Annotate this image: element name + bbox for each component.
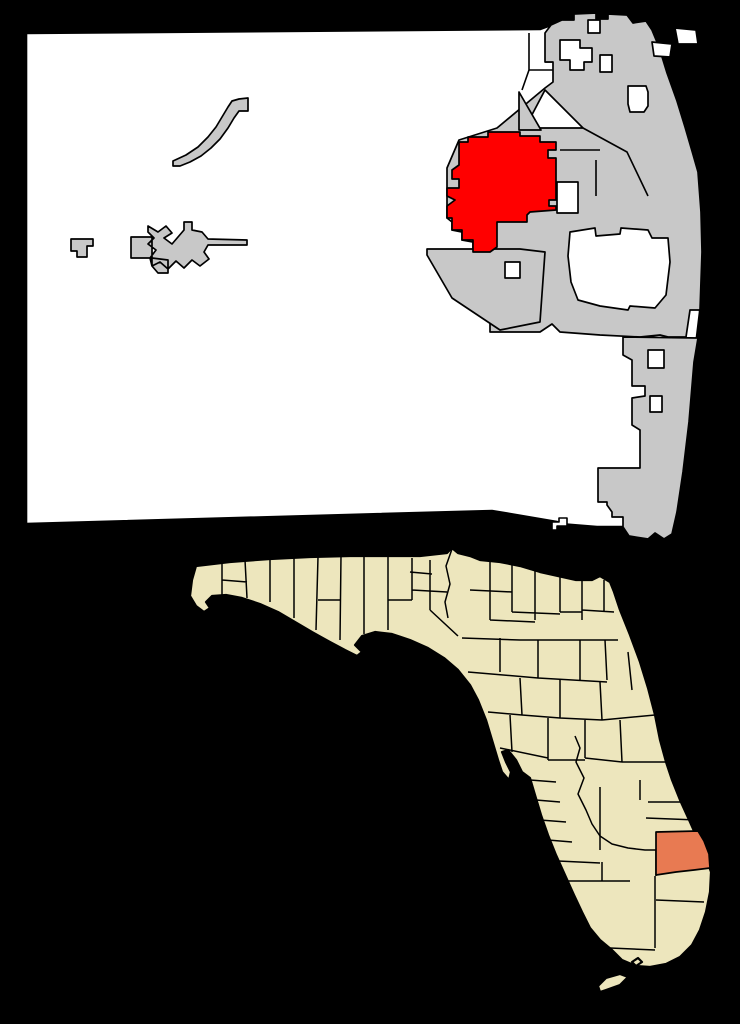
locator-map — [0, 0, 740, 1024]
state-map — [190, 548, 711, 992]
county-map — [26, 13, 702, 539]
locator-map-svg — [0, 0, 740, 1024]
keys-islands — [598, 958, 642, 992]
highlighted-county — [656, 831, 710, 875]
state-outline — [190, 548, 711, 967]
